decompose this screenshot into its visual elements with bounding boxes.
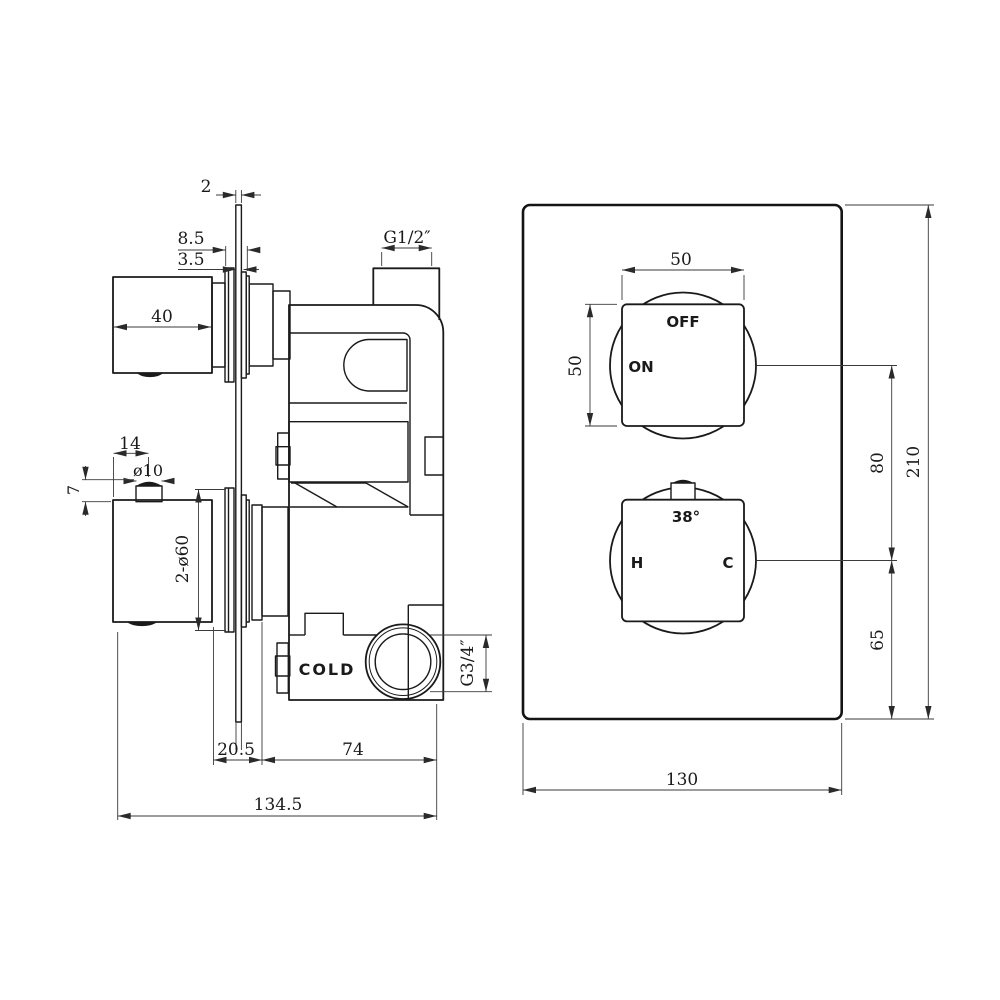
inlet-circle-inner xyxy=(375,634,431,690)
on-label: ON xyxy=(628,358,653,376)
dim-plate-height: 210 xyxy=(845,205,934,719)
dim-knob-spacing: 80 xyxy=(757,366,898,561)
svg-text:130: 130 xyxy=(666,770,698,790)
dim-bottom-offset: 65 xyxy=(868,561,892,720)
cold-front-label: C xyxy=(722,554,733,572)
dim-inlet-thread: G3/4″ xyxy=(430,635,492,692)
bottom-knob-side xyxy=(113,500,212,622)
inner-elbow-wall xyxy=(289,333,410,515)
svg-text:G1/2″: G1/2″ xyxy=(383,228,430,248)
temp-pin-dome xyxy=(136,482,162,486)
top-escutcheon xyxy=(225,268,234,382)
svg-text:50: 50 xyxy=(670,250,692,270)
upper-hex-nut xyxy=(278,433,289,479)
temp-label: 38° xyxy=(672,508,700,526)
svg-text:8.5: 8.5 xyxy=(177,229,204,249)
technical-drawing-page: COLD 2 8.5 3.5 G1/2″ xyxy=(0,0,1000,1000)
temp-button xyxy=(671,483,695,501)
top-cartridge-ring xyxy=(249,284,273,366)
temp-button-cap xyxy=(673,480,694,483)
svg-text:ø10: ø10 xyxy=(133,461,163,480)
bottom-knob-grip xyxy=(127,622,157,626)
bottom-flange-a xyxy=(241,495,246,627)
off-label: OFF xyxy=(666,313,699,331)
dim-pin-height: 7 xyxy=(64,466,134,516)
svg-text:G3/4″: G3/4″ xyxy=(458,639,478,686)
mid-block xyxy=(289,422,408,482)
svg-text:134.5: 134.5 xyxy=(254,795,303,815)
svg-text:20.5: 20.5 xyxy=(217,740,255,760)
top-cartridge-body xyxy=(273,291,290,359)
svg-text:3.5: 3.5 xyxy=(177,250,204,270)
svg-text:210: 210 xyxy=(904,446,924,478)
lever-diag-left xyxy=(295,483,337,507)
dim-outlet-thread: G1/2″ xyxy=(382,228,432,266)
bottom-escutcheon xyxy=(225,488,234,632)
dim-plate-width: 130 xyxy=(523,723,842,795)
front-plate xyxy=(523,205,842,719)
cold-label: COLD xyxy=(299,660,356,679)
lower-hex-nut xyxy=(277,643,288,693)
cold-block-step xyxy=(305,613,343,635)
top-knob-grip xyxy=(137,373,163,377)
cavity-cylinder xyxy=(344,340,407,392)
dim-depth-b: 3.5 xyxy=(177,250,259,270)
valve-body-outline xyxy=(289,305,443,700)
svg-text:65: 65 xyxy=(868,629,888,651)
wall-plate-edge xyxy=(236,205,242,722)
svg-text:7: 7 xyxy=(64,485,83,495)
svg-text:14: 14 xyxy=(119,434,141,454)
mounting-tab xyxy=(425,437,443,475)
dim-plate-to-body: 20.5 xyxy=(214,622,263,765)
svg-text:80: 80 xyxy=(868,452,888,474)
dim-knob-depth: 40 xyxy=(114,307,211,327)
inlet-circle-mid xyxy=(369,628,437,696)
svg-text:50: 50 xyxy=(566,355,586,377)
valve-drawing: COLD 2 8.5 3.5 G1/2″ xyxy=(0,0,1000,1000)
inlet-circle-outer xyxy=(366,624,441,699)
svg-text:2: 2 xyxy=(201,177,212,197)
bottom-cartridge-body xyxy=(262,507,288,616)
dim-pin-dia: ø10 xyxy=(126,461,172,481)
side-view: COLD 2 8.5 3.5 G1/2″ xyxy=(64,177,492,820)
front-view: OFF ON 38° H C 50 50 80 xyxy=(523,205,934,795)
svg-text:74: 74 xyxy=(342,740,364,760)
dim-plate-thickness: 2 xyxy=(201,177,261,203)
bottom-cartridge-ring xyxy=(252,505,262,620)
hot-label: H xyxy=(631,554,644,572)
svg-text:40: 40 xyxy=(151,307,173,327)
top-flange-a xyxy=(241,272,246,378)
dim-escutcheon-dia: 2-ø60 xyxy=(173,490,226,631)
top-knob-stem xyxy=(212,283,225,367)
outlet-pipe xyxy=(373,268,439,320)
lever-diag-right xyxy=(366,483,408,507)
svg-text:2-ø60: 2-ø60 xyxy=(173,535,193,583)
bottom-flange-b xyxy=(246,500,249,622)
